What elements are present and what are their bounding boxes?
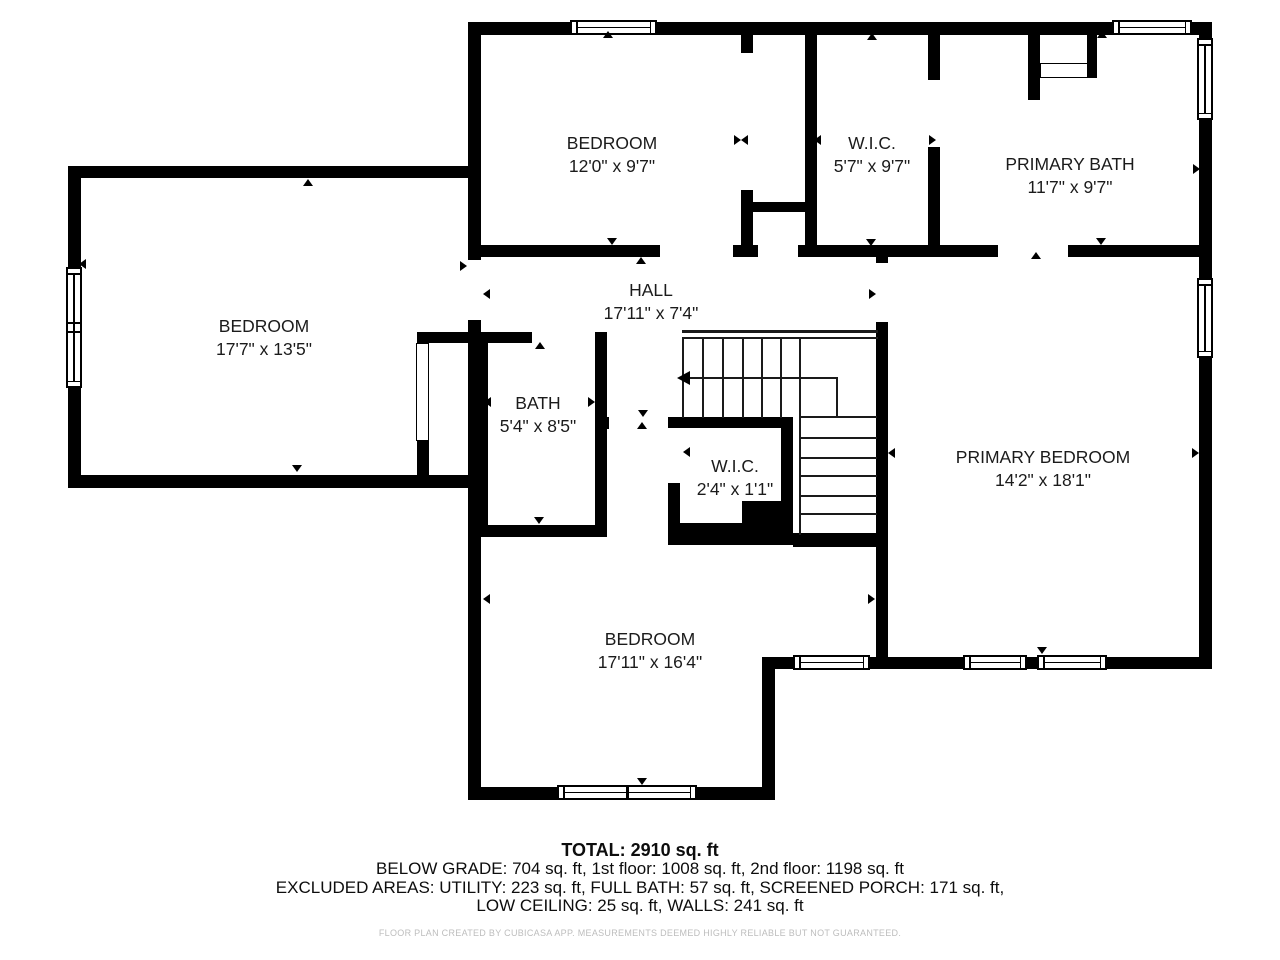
stair-edge — [682, 330, 878, 333]
arrow-icon — [866, 239, 876, 246]
window — [1197, 278, 1213, 358]
wall — [697, 787, 775, 800]
room-dims: 14'2" x 18'1" — [956, 469, 1130, 492]
window — [1112, 20, 1192, 35]
arrow-icon — [637, 422, 647, 429]
bath-closet-door — [1040, 63, 1088, 78]
arrow-icon — [483, 594, 490, 604]
summary-line: BELOW GRADE: 704 sq. ft, 1st floor: 1008… — [0, 860, 1280, 878]
room-label-wic-small: W.I.C. 2'4" x 1'1" — [697, 455, 774, 501]
wall — [1199, 358, 1212, 668]
wall — [798, 245, 998, 257]
stair-direction-line — [836, 377, 838, 418]
stair-tread — [801, 416, 877, 418]
window — [66, 267, 82, 388]
arrow-icon — [1192, 448, 1199, 458]
wall — [1107, 657, 1212, 669]
room-dims: 5'7" x 9'7" — [834, 155, 911, 178]
room-dims: 17'7" x 13'5" — [216, 338, 312, 361]
wall — [476, 332, 488, 537]
room-label-primary-bedroom: PRIMARY BEDROOM 14'2" x 18'1" — [956, 446, 1130, 492]
wall — [468, 245, 660, 257]
arrow-icon — [1031, 252, 1041, 259]
arrow-icon — [483, 289, 490, 299]
arrow-icon — [588, 397, 595, 407]
stair-direction-line — [688, 377, 838, 379]
arrow-icon — [79, 259, 86, 269]
room-name: BEDROOM — [598, 628, 702, 651]
wall — [468, 22, 481, 260]
window — [793, 655, 870, 670]
arrow-icon — [868, 594, 875, 604]
arrow-icon — [535, 342, 545, 349]
room-name: W.I.C. — [697, 455, 774, 478]
room-name: BEDROOM — [216, 315, 312, 338]
arrow-icon — [869, 289, 876, 299]
room-name: W.I.C. — [834, 132, 911, 155]
arrow-icon — [637, 778, 647, 785]
wall — [417, 332, 532, 343]
wall — [733, 245, 758, 257]
arrow-icon — [1097, 31, 1107, 38]
arrow-icon — [888, 448, 895, 458]
floor-plan: BEDROOM 12'0" x 9'7" W.I.C. 5'7" x 9'7" … — [0, 0, 1280, 960]
arrow-icon — [636, 257, 646, 264]
arrow-icon — [303, 179, 313, 186]
wall — [417, 440, 429, 488]
wall — [468, 787, 557, 800]
wall — [876, 255, 888, 263]
arrow-icon — [1193, 164, 1200, 174]
arrow-icon — [534, 517, 544, 524]
window — [557, 785, 697, 800]
arrow-icon — [607, 238, 617, 245]
stair-tread — [801, 437, 877, 439]
arrow-icon — [867, 33, 877, 40]
room-label-wic-top: W.I.C. 5'7" x 9'7" — [834, 132, 911, 178]
wall — [742, 501, 793, 534]
wall — [68, 166, 81, 268]
room-label-primary-bath: PRIMARY BATH 11'7" x 9'7" — [1005, 153, 1134, 199]
window — [570, 20, 657, 35]
stair-tread — [801, 513, 877, 515]
wall — [68, 388, 81, 488]
wall — [876, 322, 888, 657]
arrow-icon — [484, 397, 491, 407]
room-dims: 2'4" x 1'1" — [697, 478, 774, 501]
summary-line: EXCLUDED AREAS: UTILITY: 223 sq. ft, FUL… — [0, 879, 1280, 897]
window — [1197, 38, 1213, 120]
room-name: PRIMARY BATH — [1005, 153, 1134, 176]
room-label-bedroom-top: BEDROOM 12'0" x 9'7" — [567, 132, 657, 178]
wall — [468, 22, 570, 35]
wall — [68, 166, 480, 178]
stair-tread — [801, 457, 877, 459]
room-name: PRIMARY BEDROOM — [956, 446, 1130, 469]
arrow-icon — [814, 135, 821, 145]
arrow-icon — [292, 465, 302, 472]
area-summary: TOTAL: 2910 sq. ft BELOW GRADE: 704 sq. … — [0, 841, 1280, 916]
room-dims: 12'0" x 9'7" — [567, 155, 657, 178]
wall — [870, 657, 963, 669]
room-dims: 11'7" x 9'7" — [1005, 176, 1134, 199]
window — [963, 655, 1027, 670]
room-dims: 17'11" x 7'4" — [604, 302, 699, 325]
room-name: BEDROOM — [567, 132, 657, 155]
wall — [741, 35, 753, 53]
arrow-icon — [929, 135, 936, 145]
arrow-icon — [1096, 238, 1106, 245]
room-label-bath: BATH 5'4" x 8'5" — [500, 392, 577, 438]
arrow-icon — [1037, 647, 1047, 654]
stair-direction-arrow-icon — [677, 371, 690, 385]
room-dims: 17'11" x 16'4" — [598, 651, 702, 674]
arrow-icon — [460, 261, 467, 271]
arrow-icon — [741, 135, 748, 145]
wall — [470, 525, 607, 537]
wall — [1068, 245, 1212, 257]
stair-tread — [801, 475, 877, 477]
closet-door — [416, 343, 429, 441]
wall — [668, 417, 793, 428]
wall — [1199, 22, 1212, 38]
wall — [762, 657, 793, 669]
room-name: HALL — [604, 279, 699, 302]
arrow-icon — [683, 447, 690, 457]
summary-line: LOW CEILING: 25 sq. ft, WALLS: 241 sq. f… — [0, 897, 1280, 915]
arrow-icon — [734, 135, 741, 145]
wall — [1027, 657, 1037, 669]
arrow-icon — [603, 31, 613, 38]
wall — [762, 657, 775, 800]
wall — [1028, 35, 1040, 100]
wall — [657, 22, 1112, 35]
room-name: BATH — [500, 392, 577, 415]
room-label-bedroom-left: BEDROOM 17'7" x 13'5" — [216, 315, 312, 361]
wall — [1087, 35, 1097, 78]
disclaimer-text: FLOOR PLAN CREATED BY CUBICASA APP. MEAS… — [0, 928, 1280, 938]
arrow-icon — [638, 410, 648, 417]
room-label-hall: HALL 17'11" x 7'4" — [604, 279, 699, 325]
wall — [793, 533, 888, 547]
room-dims: 5'4" x 8'5" — [500, 415, 577, 438]
wall — [928, 147, 940, 257]
room-label-bedroom-bottom: BEDROOM 17'11" x 16'4" — [598, 628, 702, 674]
wall — [753, 202, 805, 212]
window — [1037, 655, 1107, 670]
summary-total: TOTAL: 2910 sq. ft — [0, 841, 1280, 859]
wall — [928, 33, 940, 80]
wall — [595, 332, 607, 537]
stair-tread — [801, 495, 877, 497]
